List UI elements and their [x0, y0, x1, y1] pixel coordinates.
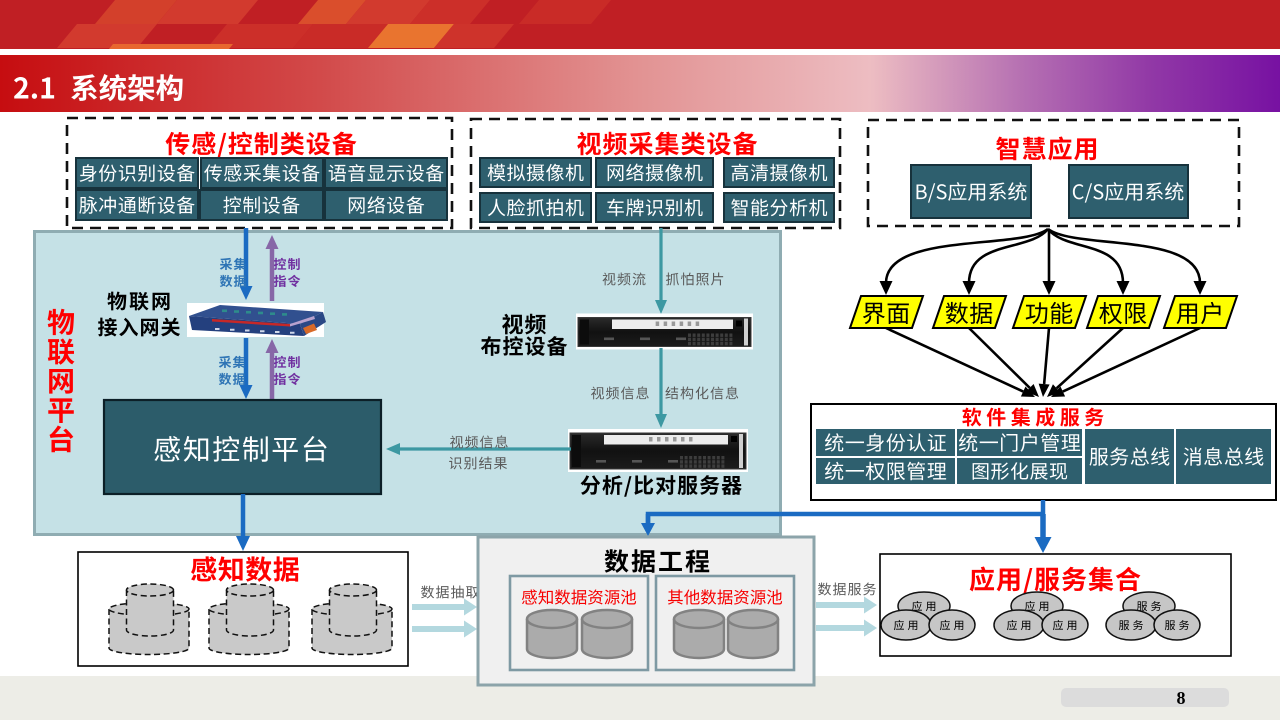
svg-text:8: 8: [1177, 688, 1186, 708]
